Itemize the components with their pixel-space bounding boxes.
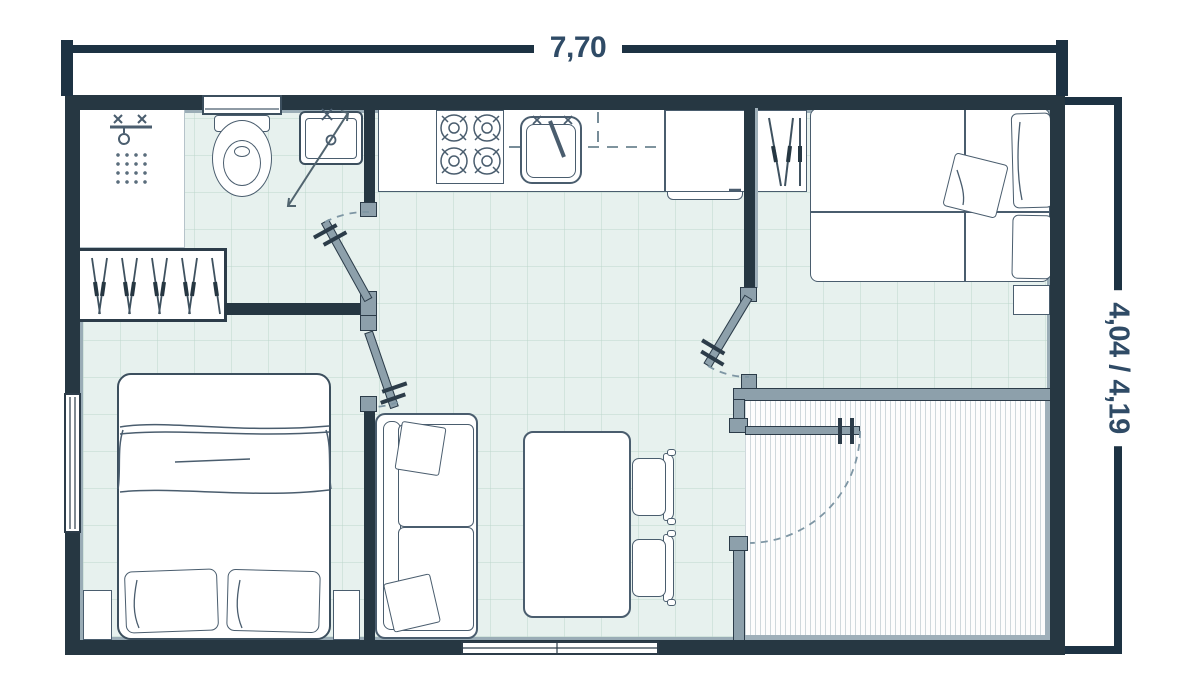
- chair-arm: [667, 518, 676, 525]
- dimension-height-label: 4,04 / 4,19: [1100, 290, 1137, 446]
- bedroom-door-jamb-top: [360, 315, 377, 331]
- wall-bathroom-kitchen: [364, 108, 375, 203]
- deck-door-handle: [838, 418, 842, 444]
- chair-arm: [667, 530, 676, 537]
- pillow: [1011, 112, 1053, 208]
- wall-bedroom-living: [364, 398, 375, 640]
- chair: [632, 451, 674, 523]
- pillow: [1011, 215, 1052, 280]
- dimension-tick: [1056, 40, 1068, 96]
- throw-pillow: [394, 421, 446, 476]
- nightstand: [333, 590, 360, 640]
- shower-drain-grid: [114, 151, 150, 185]
- deck-door-leaf: [745, 426, 860, 435]
- dining-table: [523, 431, 631, 618]
- bedroom-door-jamb-bottom: [360, 396, 377, 412]
- dimension-width-label: 7,70: [534, 28, 622, 68]
- toilet-tank: [202, 95, 282, 115]
- deck-plank-floor: [745, 399, 1050, 640]
- bathroom-door-jamb-top: [360, 202, 377, 217]
- wardrobe: [757, 110, 807, 192]
- pillow: [124, 568, 219, 633]
- nightstand: [1013, 285, 1050, 315]
- bedroom-window: [64, 393, 81, 533]
- chair-seat: [632, 539, 666, 597]
- nightstand: [83, 590, 112, 640]
- chair: [632, 532, 674, 604]
- wall-right: [1050, 95, 1065, 655]
- deck-wall-left-lower: [733, 538, 745, 642]
- toilet-flush: [234, 146, 250, 157]
- bedroom2-door-stop: [741, 374, 757, 389]
- living-sliding-window: [461, 641, 659, 655]
- chair-seat: [632, 458, 666, 516]
- wall-bathroom-bedroom: [225, 303, 375, 315]
- wall-bedroom2-kitchen: [744, 108, 755, 288]
- bed-divider: [811, 211, 1049, 213]
- wall-left: [65, 95, 80, 655]
- wall-lining: [755, 108, 758, 288]
- tall-cabinet: [665, 110, 745, 192]
- kitchen-sink-basin: [526, 124, 576, 178]
- floor-plan-canvas: 7,70 4,04 / 4,19: [0, 0, 1200, 675]
- chair-arm: [667, 599, 676, 606]
- hall-wardrobe: [75, 248, 227, 322]
- cabinet-front: [667, 192, 743, 200]
- chair-arm: [667, 449, 676, 456]
- stove: [436, 110, 504, 184]
- dimension-tick: [1065, 646, 1122, 654]
- deck-wall-top: [733, 388, 1053, 401]
- pillow: [226, 569, 321, 633]
- bathroom-sink-basin: [305, 118, 357, 159]
- deck-wall-cap: [729, 536, 748, 551]
- deck-door-handle: [850, 418, 854, 444]
